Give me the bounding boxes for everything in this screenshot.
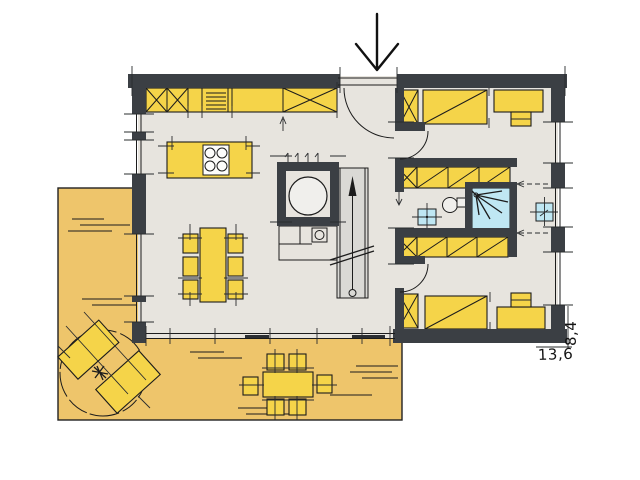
outdoor-chair [317,375,332,393]
dining-chair [228,257,243,276]
shower-wall-top [465,182,517,188]
spine-wall [395,288,404,329]
floor-plan-canvas: 13,6 8,4 [0,0,640,480]
dining-chair [228,234,243,253]
door-jamb-bedroom-bottom [395,256,425,264]
wall-left-mullion [132,296,146,302]
desk [497,307,545,329]
technical-room-wall-bottom [277,217,339,226]
wall-bottom-east-wing [393,329,567,343]
dimension-depth-label: 8,4 [562,321,580,346]
shower-wall-left [465,182,472,237]
floor-plan-drawing: 13,6 8,4 [0,0,640,480]
dining-chair [183,234,198,253]
wall-left-corner [132,322,146,343]
dining-area [178,224,248,306]
dining-chair [228,280,243,299]
shower-wall-right [510,182,517,237]
wall-left [132,74,146,114]
technical-room-wall-top [277,162,339,171]
spine-wall [395,88,404,125]
wall-left [132,174,146,234]
outdoor-chair [289,399,306,415]
dining-table [200,228,226,302]
basin-drain [426,216,428,218]
outdoor-chair [267,399,284,415]
outdoor-table [263,372,313,397]
door-jamb-bedroom-top [395,122,425,131]
wardrobe-cap-wall [508,237,517,257]
dimension-width-label: 13,6 [538,345,574,364]
technical-room-wall-right [330,162,339,226]
kitchen-counter [146,88,337,112]
wall-right [551,74,565,122]
boiler-tank [289,177,327,215]
wall-top-east [397,74,567,88]
wall-right [551,227,565,252]
dining-chair [183,280,198,299]
dining-chair [183,257,198,276]
technical-room-wall-left [277,162,286,226]
wall-top-west [128,74,340,88]
bathroom-wall-north [395,158,517,167]
entrance-arrow-icon [356,14,398,70]
toilet-cistern [457,198,466,207]
toilet-bowl [443,198,458,213]
wall-right [551,163,565,188]
desk [494,90,543,112]
wall-left-mullion [132,132,146,140]
outdoor-chair [243,377,258,395]
bathroom-wall-south [395,228,517,237]
